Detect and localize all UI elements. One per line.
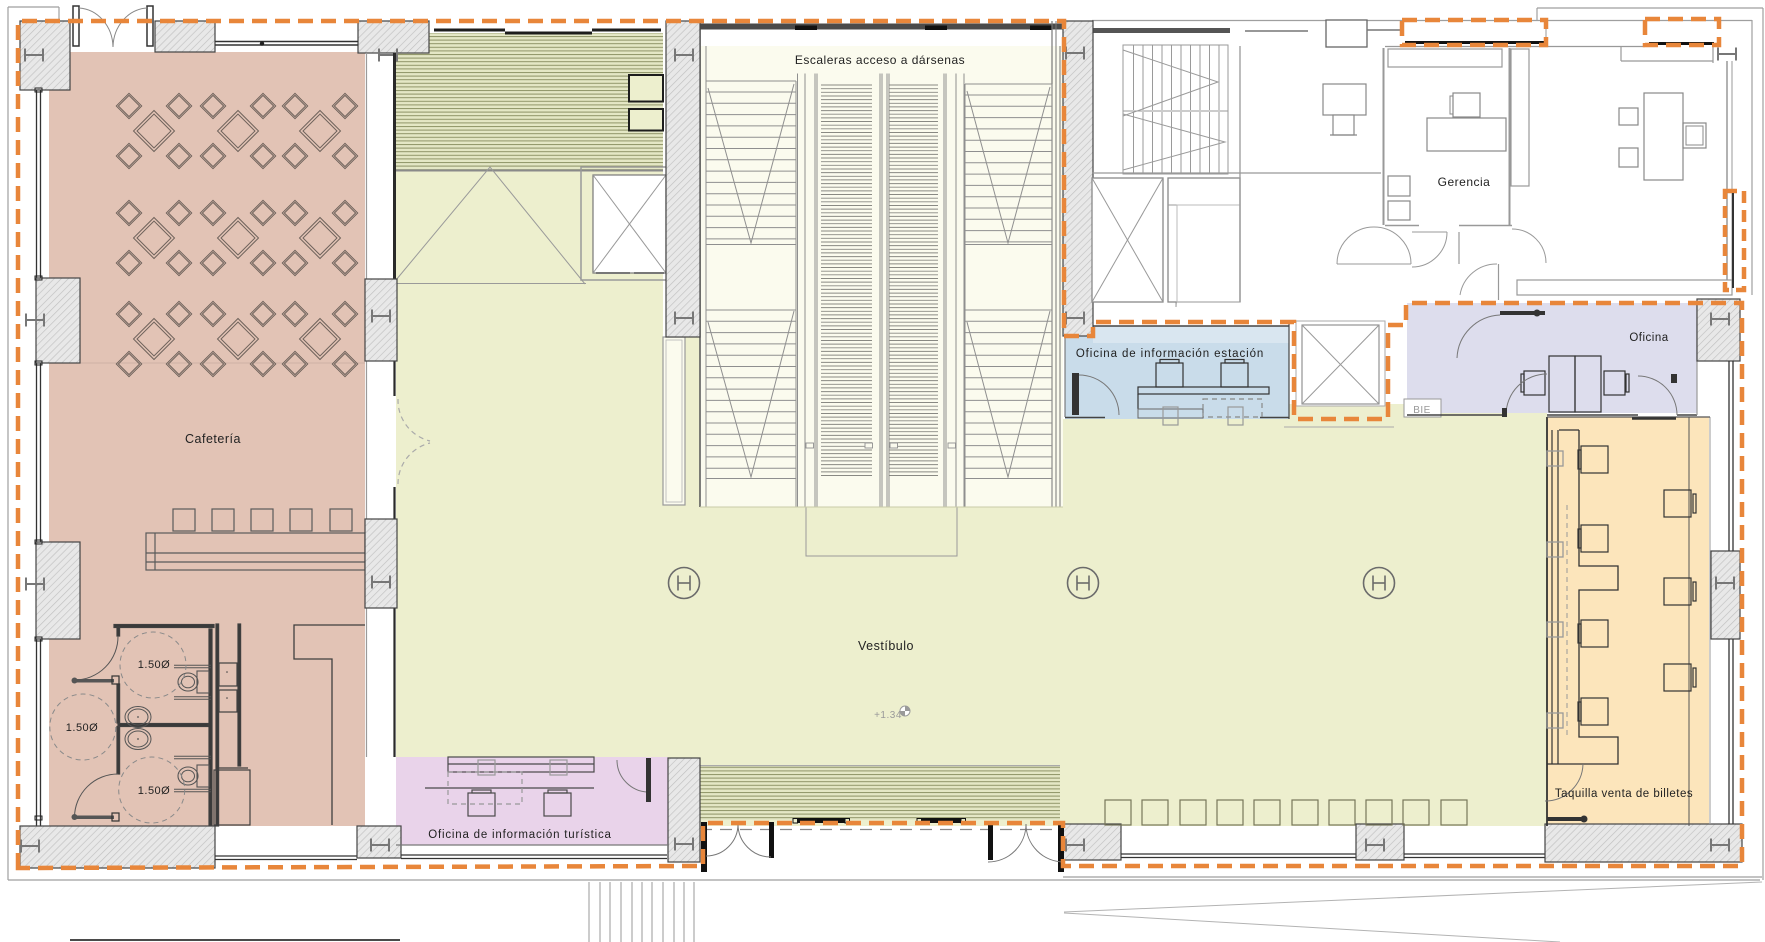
svg-text:Oficina de información estació: Oficina de información estación xyxy=(1076,348,1264,360)
svg-text:Vestíbulo: Vestíbulo xyxy=(858,639,914,653)
svg-text:Cafetería: Cafetería xyxy=(185,432,241,446)
svg-text:1.50Ø: 1.50Ø xyxy=(138,659,170,671)
svg-text:1.50Ø: 1.50Ø xyxy=(138,785,170,797)
svg-text:1.50Ø: 1.50Ø xyxy=(66,722,98,734)
svg-text:Oficina de información turísti: Oficina de información turística xyxy=(428,829,611,841)
svg-text:Oficina: Oficina xyxy=(1629,332,1668,344)
svg-text:+1.34: +1.34 xyxy=(874,710,902,721)
svg-text:Taquilla venta de billetes: Taquilla venta de billetes xyxy=(1555,788,1693,800)
svg-text:Escaleras acceso a dársenas: Escaleras acceso a dársenas xyxy=(795,53,965,67)
svg-text:Gerencia: Gerencia xyxy=(1438,175,1491,189)
